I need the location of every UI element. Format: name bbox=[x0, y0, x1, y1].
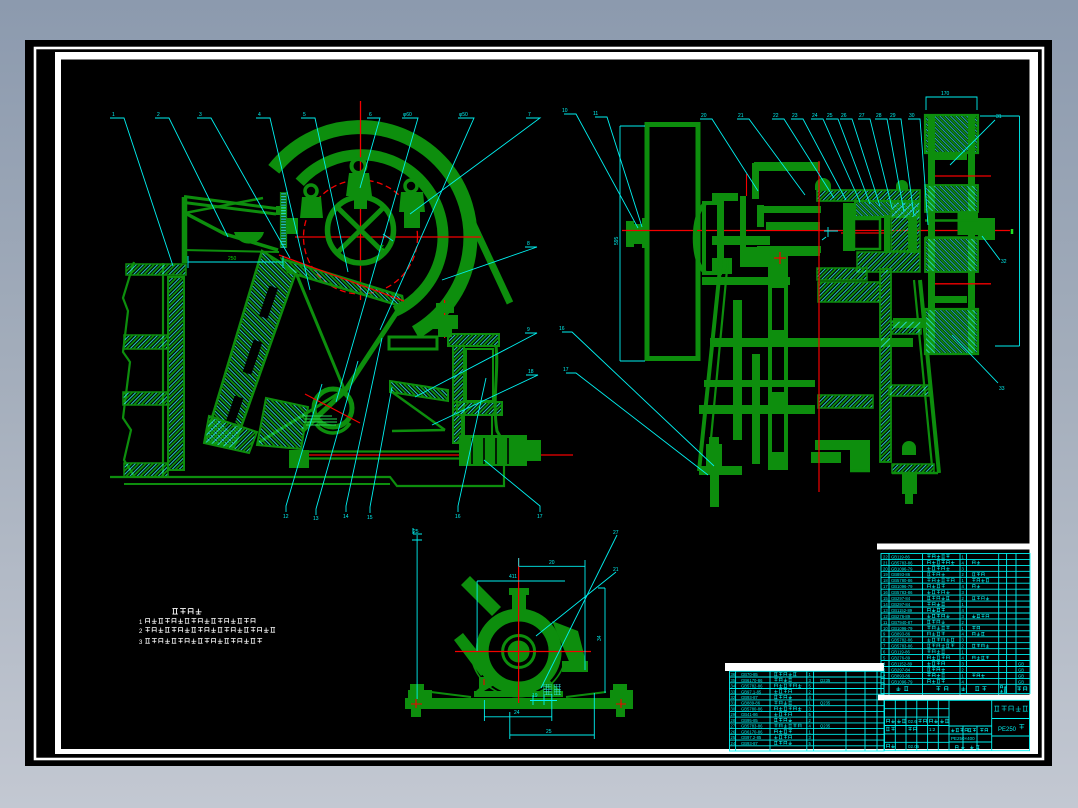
svg-text:170: 170 bbox=[941, 91, 950, 97]
svg-text:35: 35 bbox=[731, 678, 736, 683]
svg-text:15: 15 bbox=[883, 596, 888, 601]
svg-text:24: 24 bbox=[514, 710, 520, 716]
svg-text:GB1152-89: GB1152-89 bbox=[891, 661, 913, 666]
svg-text:13: 13 bbox=[313, 516, 319, 522]
svg-text:21: 21 bbox=[738, 113, 744, 119]
svg-text:13: 13 bbox=[883, 608, 888, 613]
svg-text:GB5782-86: GB5782-86 bbox=[891, 638, 913, 643]
svg-text:GB1096-79: GB1096-79 bbox=[891, 679, 913, 684]
svg-text:GB1152-89: GB1152-89 bbox=[891, 608, 913, 613]
svg-text:1: 1 bbox=[112, 112, 115, 118]
svg-text:GB893-86: GB893-86 bbox=[891, 572, 911, 577]
svg-text:7: 7 bbox=[528, 112, 531, 118]
svg-text:595: 595 bbox=[614, 236, 620, 245]
svg-text:21: 21 bbox=[883, 560, 888, 565]
svg-text:5: 5 bbox=[303, 112, 306, 118]
svg-text:411: 411 bbox=[509, 574, 517, 580]
svg-text:GB276-89: GB276-89 bbox=[891, 614, 911, 619]
svg-text:24: 24 bbox=[380, 244, 386, 250]
svg-text:25: 25 bbox=[546, 729, 552, 735]
svg-text:30: 30 bbox=[909, 113, 915, 119]
svg-text:34: 34 bbox=[597, 635, 603, 641]
svg-text:GB297-84: GB297-84 bbox=[891, 602, 911, 607]
svg-text:GB6170-86: GB6170-86 bbox=[741, 729, 763, 734]
svg-text:GB1096-79: GB1096-79 bbox=[891, 566, 913, 571]
svg-text:16: 16 bbox=[559, 326, 565, 332]
svg-text:25: 25 bbox=[827, 113, 833, 119]
svg-text:10: 10 bbox=[562, 108, 568, 114]
svg-text:22: 22 bbox=[883, 554, 888, 559]
svg-text:9: 9 bbox=[527, 327, 530, 333]
svg-text:GB5783-86: GB5783-86 bbox=[891, 560, 913, 565]
svg-text:GB889-86: GB889-86 bbox=[741, 701, 761, 706]
svg-text:1:2: 1:2 bbox=[929, 727, 936, 732]
svg-text:φ60: φ60 bbox=[403, 112, 412, 118]
svg-text:14: 14 bbox=[883, 602, 888, 607]
svg-text:31: 31 bbox=[731, 701, 736, 706]
svg-text:15: 15 bbox=[367, 515, 373, 521]
svg-text:GB: GB bbox=[1018, 673, 1024, 678]
svg-text:19: 19 bbox=[532, 693, 538, 699]
svg-text:24: 24 bbox=[731, 741, 736, 746]
svg-text:GB893-86: GB893-86 bbox=[891, 632, 911, 637]
svg-text:29: 29 bbox=[890, 113, 896, 119]
svg-text:12: 12 bbox=[883, 614, 888, 619]
svg-text:16: 16 bbox=[455, 514, 461, 520]
svg-text:34: 34 bbox=[731, 684, 736, 689]
svg-text:26: 26 bbox=[731, 729, 736, 734]
svg-text:GB7940-87: GB7940-87 bbox=[891, 620, 913, 625]
svg-text:GB297-84: GB297-84 bbox=[891, 667, 911, 672]
svg-text:25: 25 bbox=[413, 529, 419, 535]
svg-text:Q235: Q235 bbox=[820, 701, 831, 706]
svg-text:18: 18 bbox=[528, 369, 534, 375]
svg-text:20: 20 bbox=[883, 566, 888, 571]
svg-text:φ50: φ50 bbox=[459, 112, 468, 118]
svg-text:10: 10 bbox=[883, 626, 888, 631]
svg-text:GB6170-86: GB6170-86 bbox=[741, 678, 763, 683]
svg-text:8: 8 bbox=[527, 241, 530, 247]
svg-text:GB276-89: GB276-89 bbox=[891, 656, 911, 661]
svg-text:27: 27 bbox=[731, 724, 736, 729]
svg-text:GB93-87: GB93-87 bbox=[741, 741, 758, 746]
svg-text:11: 11 bbox=[883, 620, 888, 625]
svg-text:Q235: Q235 bbox=[820, 724, 831, 729]
svg-text:32: 32 bbox=[1001, 259, 1007, 265]
svg-text:GB95-85: GB95-85 bbox=[741, 718, 758, 723]
svg-text:PE250×400: PE250×400 bbox=[951, 736, 975, 741]
svg-text:26: 26 bbox=[841, 113, 847, 119]
svg-text:33: 33 bbox=[731, 689, 736, 694]
svg-text:GB5780-86: GB5780-86 bbox=[891, 578, 913, 583]
svg-text:14: 14 bbox=[343, 514, 349, 520]
svg-text:4: 4 bbox=[258, 112, 261, 118]
svg-text:33: 33 bbox=[999, 386, 1005, 392]
svg-text:24: 24 bbox=[812, 113, 818, 119]
svg-text:21: 21 bbox=[613, 567, 619, 573]
svg-text:6: 6 bbox=[369, 112, 372, 118]
svg-text:GB97.1-85: GB97.1-85 bbox=[741, 689, 762, 694]
svg-text:32: 32 bbox=[731, 695, 736, 700]
svg-text:GB297-84: GB297-84 bbox=[891, 596, 911, 601]
svg-text:11: 11 bbox=[593, 111, 598, 117]
svg-text:GB5780-86: GB5780-86 bbox=[741, 707, 763, 712]
svg-text:17: 17 bbox=[883, 584, 888, 589]
svg-text:GB1096-79: GB1096-79 bbox=[891, 584, 913, 589]
svg-text:GB97.2-85: GB97.2-85 bbox=[741, 735, 762, 740]
svg-text:02.06: 02.06 bbox=[908, 744, 920, 749]
svg-text:GB: GB bbox=[1018, 679, 1024, 684]
svg-text:28: 28 bbox=[731, 718, 736, 723]
svg-text:17: 17 bbox=[537, 514, 543, 520]
svg-text:36: 36 bbox=[731, 672, 736, 677]
svg-text:12: 12 bbox=[283, 514, 289, 520]
svg-text:31: 31 bbox=[996, 114, 1002, 120]
svg-text:GB893-86: GB893-86 bbox=[891, 673, 911, 678]
svg-text:GB1096-79: GB1096-79 bbox=[891, 626, 913, 631]
svg-text:GB5783-86: GB5783-86 bbox=[891, 590, 913, 595]
svg-text:GB119-86: GB119-86 bbox=[891, 554, 910, 559]
svg-text:GB5783-86: GB5783-86 bbox=[741, 724, 763, 729]
svg-text:22: 22 bbox=[773, 113, 779, 119]
svg-text:16: 16 bbox=[883, 590, 888, 595]
svg-text:02.6: 02.6 bbox=[908, 719, 917, 724]
svg-text:23: 23 bbox=[792, 113, 798, 119]
svg-text:29: 29 bbox=[731, 712, 736, 717]
svg-text:GB5782-86: GB5782-86 bbox=[741, 684, 763, 689]
svg-text:27: 27 bbox=[859, 113, 865, 119]
svg-text:GB41-86: GB41-86 bbox=[741, 712, 758, 717]
svg-text:2: 2 bbox=[157, 112, 160, 118]
svg-text:17: 17 bbox=[563, 367, 569, 373]
svg-text:18: 18 bbox=[883, 578, 888, 583]
svg-text:GB119-86: GB119-86 bbox=[891, 650, 910, 655]
svg-text:25: 25 bbox=[731, 735, 736, 740]
svg-text:30: 30 bbox=[731, 707, 736, 712]
svg-text:Q235: Q235 bbox=[820, 678, 831, 683]
svg-text:GB: GB bbox=[1018, 661, 1024, 666]
svg-text:27: 27 bbox=[613, 530, 619, 536]
svg-text:GB: GB bbox=[1018, 667, 1024, 672]
svg-text:GB5783-86: GB5783-86 bbox=[891, 644, 913, 649]
svg-text:20: 20 bbox=[701, 113, 707, 119]
svg-text:PE250: PE250 bbox=[998, 727, 1017, 733]
svg-text:20: 20 bbox=[549, 560, 555, 566]
svg-text:3: 3 bbox=[199, 112, 202, 118]
svg-text:250: 250 bbox=[228, 256, 237, 262]
svg-text:GB70-85: GB70-85 bbox=[741, 672, 758, 677]
svg-text:28: 28 bbox=[876, 113, 882, 119]
svg-text:GB93-87: GB93-87 bbox=[741, 695, 758, 700]
svg-text:19: 19 bbox=[883, 572, 888, 577]
